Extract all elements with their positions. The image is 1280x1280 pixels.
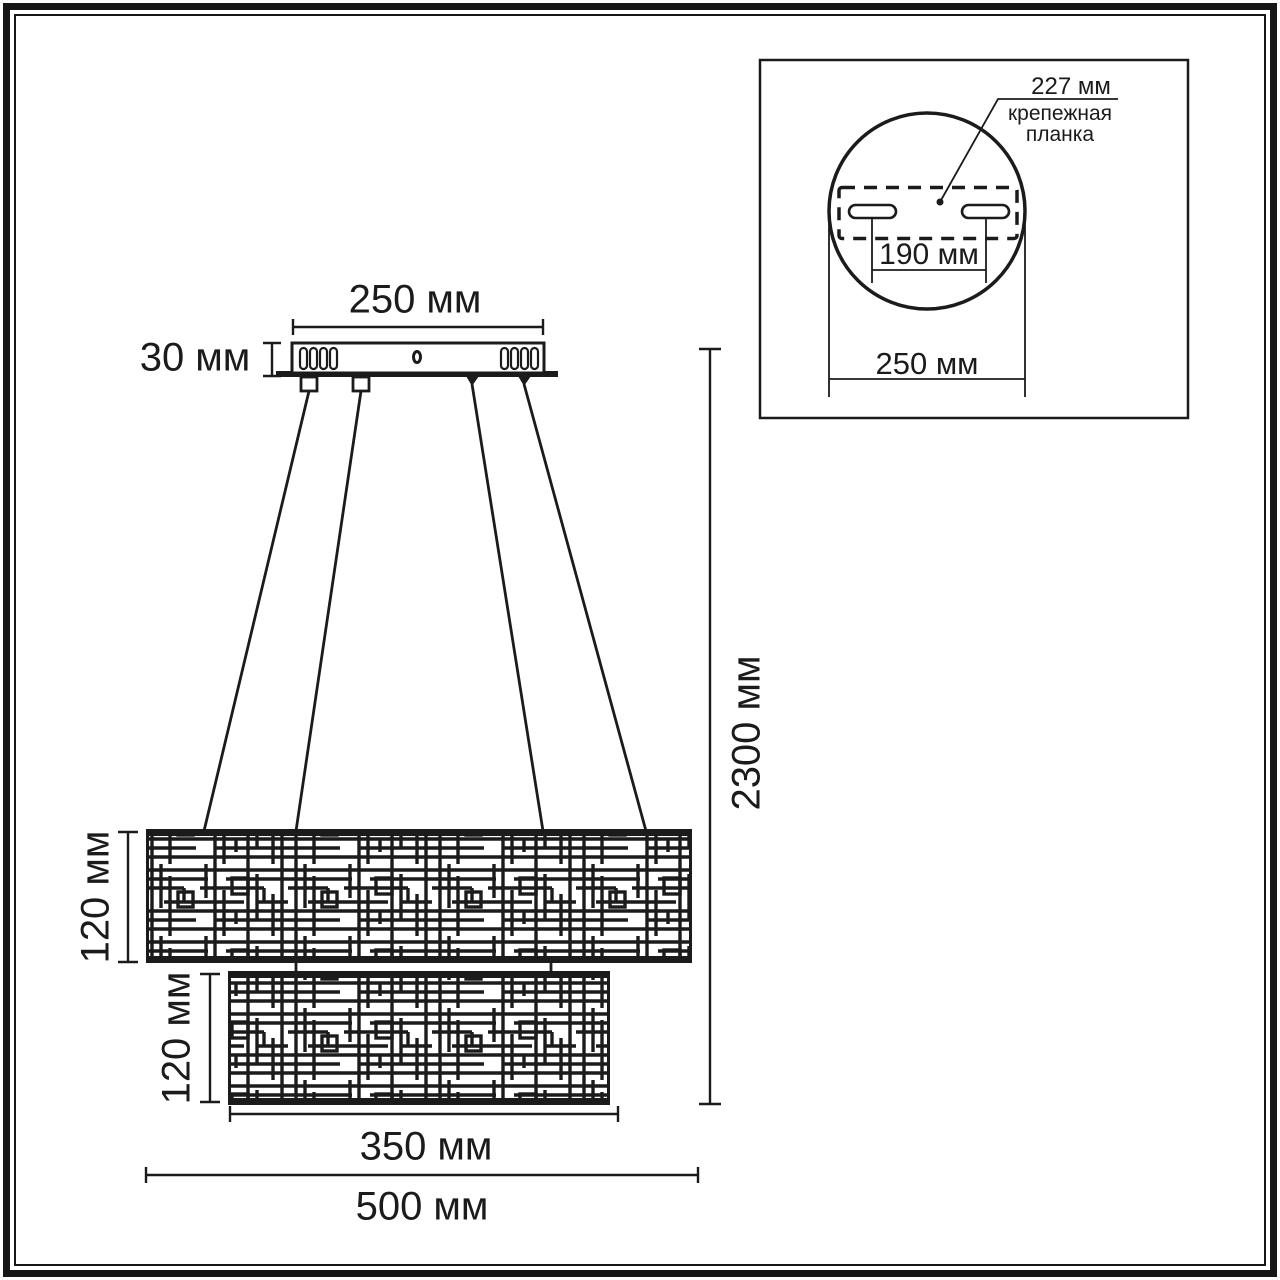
- tier-1-panel: [146, 829, 692, 963]
- bracket-slot-left: [849, 205, 896, 218]
- bracket-slot-right: [962, 205, 1009, 218]
- cable-4: [524, 384, 646, 831]
- label-bracket-name-line2: планка: [1008, 124, 1112, 145]
- cable-connector-1: [301, 377, 317, 391]
- tier-2-panel: [228, 971, 610, 1105]
- cable-connector-2: [353, 377, 369, 391]
- label-tier2-height: 120 мм: [155, 972, 200, 1105]
- tier-2-bottom-rail: [228, 1098, 610, 1105]
- label-tier1-height: 120 мм: [74, 831, 119, 964]
- label-tier1-width: 500 мм: [356, 1185, 489, 1230]
- diagram-page: 250 мм 30 мм 2300 мм 120 мм 120 мм 350 м…: [0, 0, 1280, 1280]
- label-canopy-diameter: 250 мм: [876, 346, 979, 382]
- tier-2-top-rail: [228, 971, 610, 978]
- dim-total-drop-line: [699, 349, 721, 1104]
- label-bracket-name-line1: крепежная: [1008, 103, 1112, 124]
- label-canopy-height: 30 мм: [140, 336, 251, 381]
- label-total-drop: 2300 мм: [725, 655, 770, 810]
- dim-tier2-height-line: [200, 974, 220, 1102]
- suspension-cables: [204, 384, 646, 831]
- label-bracket-length: 227 мм: [1031, 73, 1111, 101]
- tier-1-bottom-rail: [146, 956, 692, 963]
- label-canopy-width: 250 мм: [349, 278, 482, 323]
- cable-2: [296, 391, 361, 831]
- cable-3: [472, 384, 543, 831]
- label-tier2-width: 350 мм: [360, 1125, 493, 1170]
- label-bracket-name: крепежная планка: [1008, 103, 1112, 145]
- dim-tier2-width-line: [230, 1106, 618, 1122]
- label-slot-spacing: 190 мм: [879, 238, 979, 272]
- cable-1: [204, 391, 309, 831]
- tier-1-top-rail: [146, 829, 692, 836]
- dim-tier1-height-line: [118, 832, 138, 962]
- ceiling-plate: [276, 343, 558, 391]
